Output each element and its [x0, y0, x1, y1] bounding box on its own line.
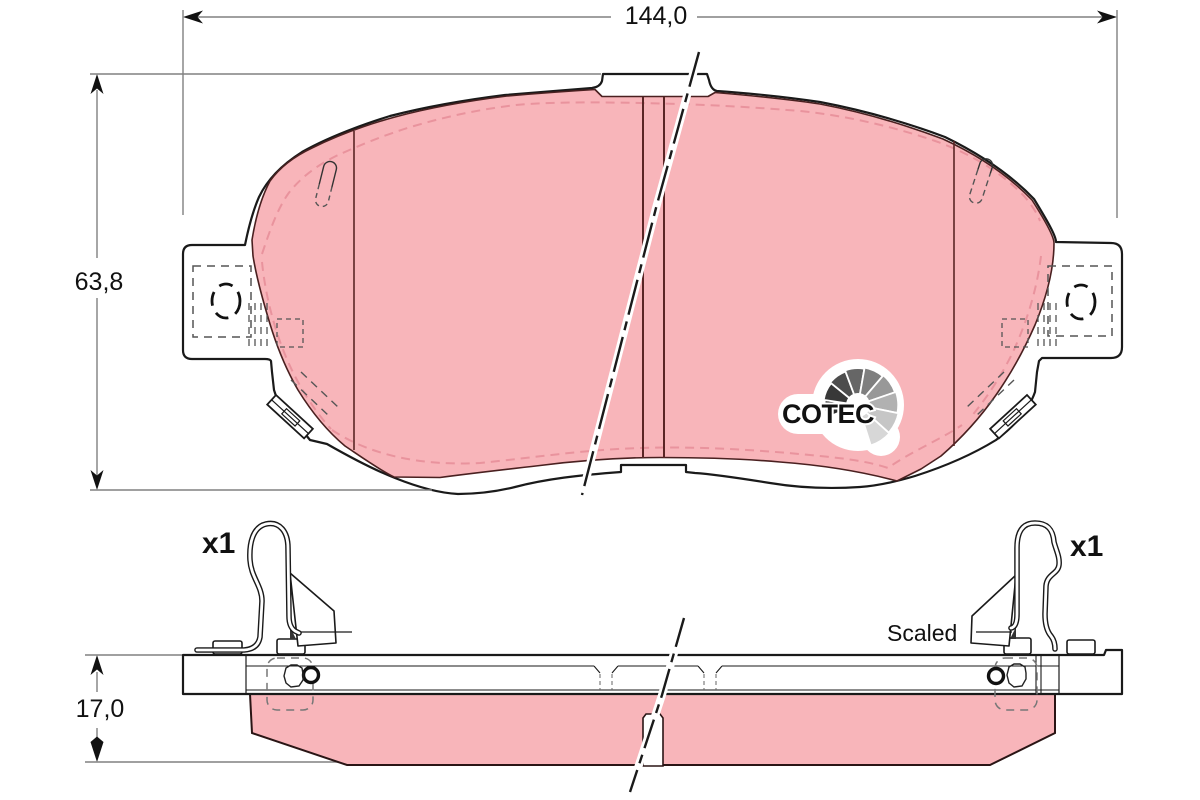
- svg-text:Scaled: Scaled: [887, 620, 957, 646]
- svg-text:17,0: 17,0: [76, 695, 125, 723]
- svg-text:x1: x1: [202, 527, 235, 560]
- svg-text:144,0: 144,0: [625, 2, 688, 30]
- svg-text:COTEC: COTEC: [782, 399, 874, 429]
- svg-text:x1: x1: [1070, 530, 1103, 563]
- svg-text:63,8: 63,8: [75, 268, 124, 296]
